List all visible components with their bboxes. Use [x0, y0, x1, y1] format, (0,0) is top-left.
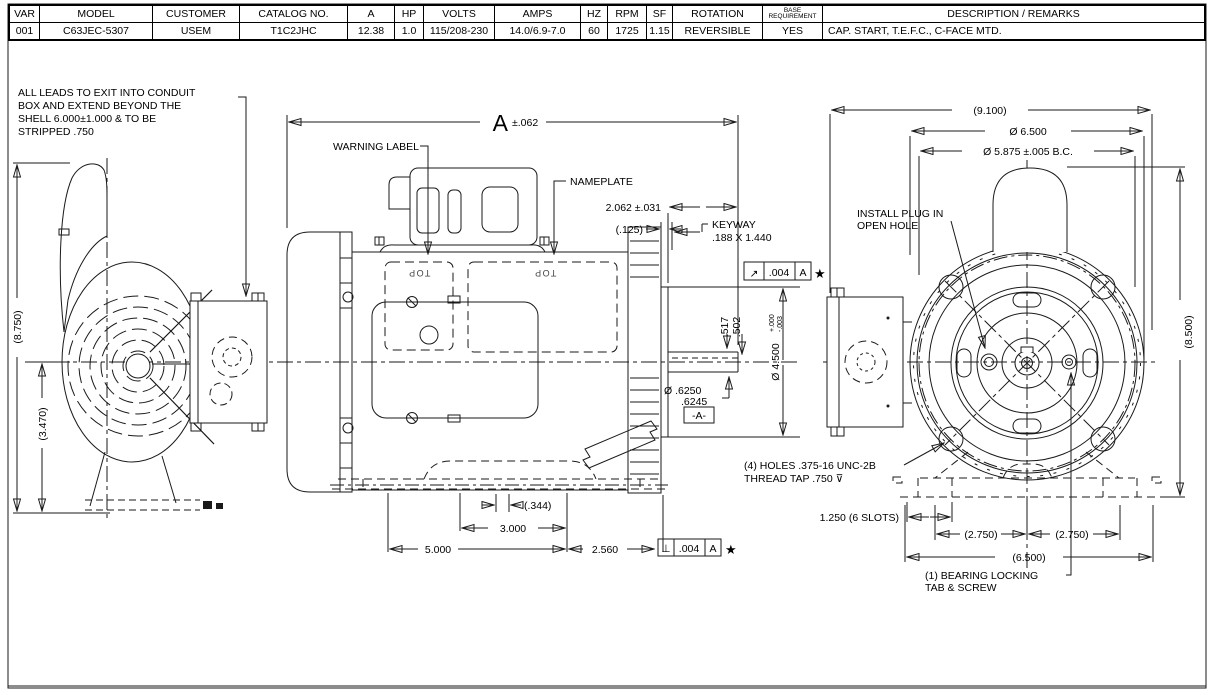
dim-shaft-ext: 2.062 ±.031 — [606, 202, 662, 214]
dim-a-tol: ±.062 — [512, 117, 538, 129]
perp-star: ★ — [725, 542, 737, 557]
runout-value: .004 — [769, 267, 790, 279]
col-rotation: ROTATIONREVERSIBLE — [673, 6, 763, 39]
col-sf: SF1.15 — [647, 6, 673, 39]
dim-foot-5000: 5.000 — [425, 544, 451, 556]
bearing-note-1: (1) BEARING LOCKING — [925, 570, 1038, 582]
dim-foot-right: (2.750) — [1055, 529, 1088, 541]
col-a: A12.38 — [348, 6, 395, 39]
keyway-note-2: .188 X 1.440 — [712, 232, 772, 244]
bearing-note-2: TAB & SCREW — [925, 582, 997, 594]
shaft-break-symbol — [583, 421, 657, 468]
dim-shaft-dia-2: .6245 — [681, 396, 707, 408]
keyway-note-1: KEYWAY — [712, 219, 756, 231]
leads-note-line1: ALL LEADS TO EXIT INTO CONDUIT — [18, 87, 196, 99]
dim-slot-width: (.344) — [524, 500, 551, 512]
dim-foot-span: (6.500) — [1012, 552, 1045, 564]
runout-symbol: ↗ — [750, 268, 759, 280]
col-hp: HP1.0 — [395, 6, 424, 39]
drawing-sheet: (8.750) (3.470) — [0, 0, 1214, 695]
col-var: VAR001 — [10, 6, 40, 39]
dim-dia-4500: Ø 4.500 +.000 -.003 — [769, 314, 784, 381]
col-description: DESCRIPTION / REMARKSCAP. START, T.E.F.C… — [823, 6, 1204, 39]
nameplate-note: NAMEPLATE — [570, 176, 633, 188]
datum-a-label: -A- — [692, 410, 707, 422]
dim-key-depth: .517 .502 — [719, 317, 743, 338]
dim-width-overall: (9.100) — [973, 105, 1006, 117]
dim-slots: 1.250 (6 SLOTS) — [820, 512, 899, 524]
svg-text:.517: .517 — [719, 317, 731, 338]
runout-star: ★ — [814, 266, 826, 281]
dim-face-foot: 2.560 — [592, 544, 618, 556]
dim-height-overall: (8.750) — [12, 310, 24, 343]
dim-height-right: (8.500) — [1183, 315, 1195, 348]
install-plug-note-1: INSTALL PLUG IN — [857, 208, 943, 220]
perp-datum: A — [709, 543, 716, 555]
col-catalog: CATALOG NO.T1C2JHC — [240, 6, 348, 39]
install-plug-note-2: OPEN HOLE — [857, 220, 918, 232]
col-hz: HZ60 — [581, 6, 608, 39]
dim-foot-left: (2.750) — [964, 529, 997, 541]
leads-note-line2: BOX AND EXTEND BEYOND THE — [18, 100, 181, 112]
leads-note-line3: SHELL 6.000±1.000 & TO BE — [18, 113, 156, 125]
dim-foot-3000: 3.000 — [500, 523, 526, 535]
perp-symbol: ⊥ — [661, 543, 670, 555]
col-amps: AMPS14.0/6.9-7.0 — [495, 6, 581, 39]
spec-table: VAR001 MODELC63JEC-5307 CUSTOMERUSEM CAT… — [8, 4, 1206, 41]
decal-top-1: TOP — [408, 268, 431, 278]
svg-text:+.000: +.000 — [769, 314, 776, 332]
leads-note-line4: STRIPPED .750 — [18, 126, 94, 138]
side-view — [287, 168, 738, 493]
col-customer: CUSTOMERUSEM — [153, 6, 240, 39]
sheet-border — [8, 4, 1206, 688]
holes-note-1: (4) HOLES .375-16 UNC-2B — [744, 460, 876, 472]
holes-note-2: THREAD TAP .750 ⊽ — [744, 473, 843, 485]
dim-a: A — [493, 110, 509, 136]
perp-value: .004 — [679, 543, 700, 555]
col-model: MODELC63JEC-5307 — [40, 6, 153, 39]
dim-height-center: (3.470) — [37, 407, 49, 440]
warning-label-note: WARNING LABEL — [333, 141, 419, 153]
col-rpm: RPM1725 — [608, 6, 647, 39]
col-volts: VOLTS115/208-230 — [424, 6, 495, 39]
motor-outline-drawing: (8.750) (3.470) — [0, 0, 1214, 695]
fan-end-view — [59, 164, 267, 510]
runout-datum: A — [799, 267, 806, 279]
col-base-req: BASE REQUIREMENTYES — [763, 6, 823, 39]
dim-gap: (.125) — [616, 224, 643, 236]
decal-top-2: TOP — [534, 268, 557, 278]
svg-text:Ø 4.500: Ø 4.500 — [770, 343, 782, 381]
svg-text:.502: .502 — [731, 317, 743, 338]
svg-text:-.003: -.003 — [777, 316, 784, 332]
dim-bolt-circle: Ø 5.875 ±.005 B.C. — [983, 146, 1073, 158]
dim-dia-6500: Ø 6.500 — [1009, 126, 1047, 138]
